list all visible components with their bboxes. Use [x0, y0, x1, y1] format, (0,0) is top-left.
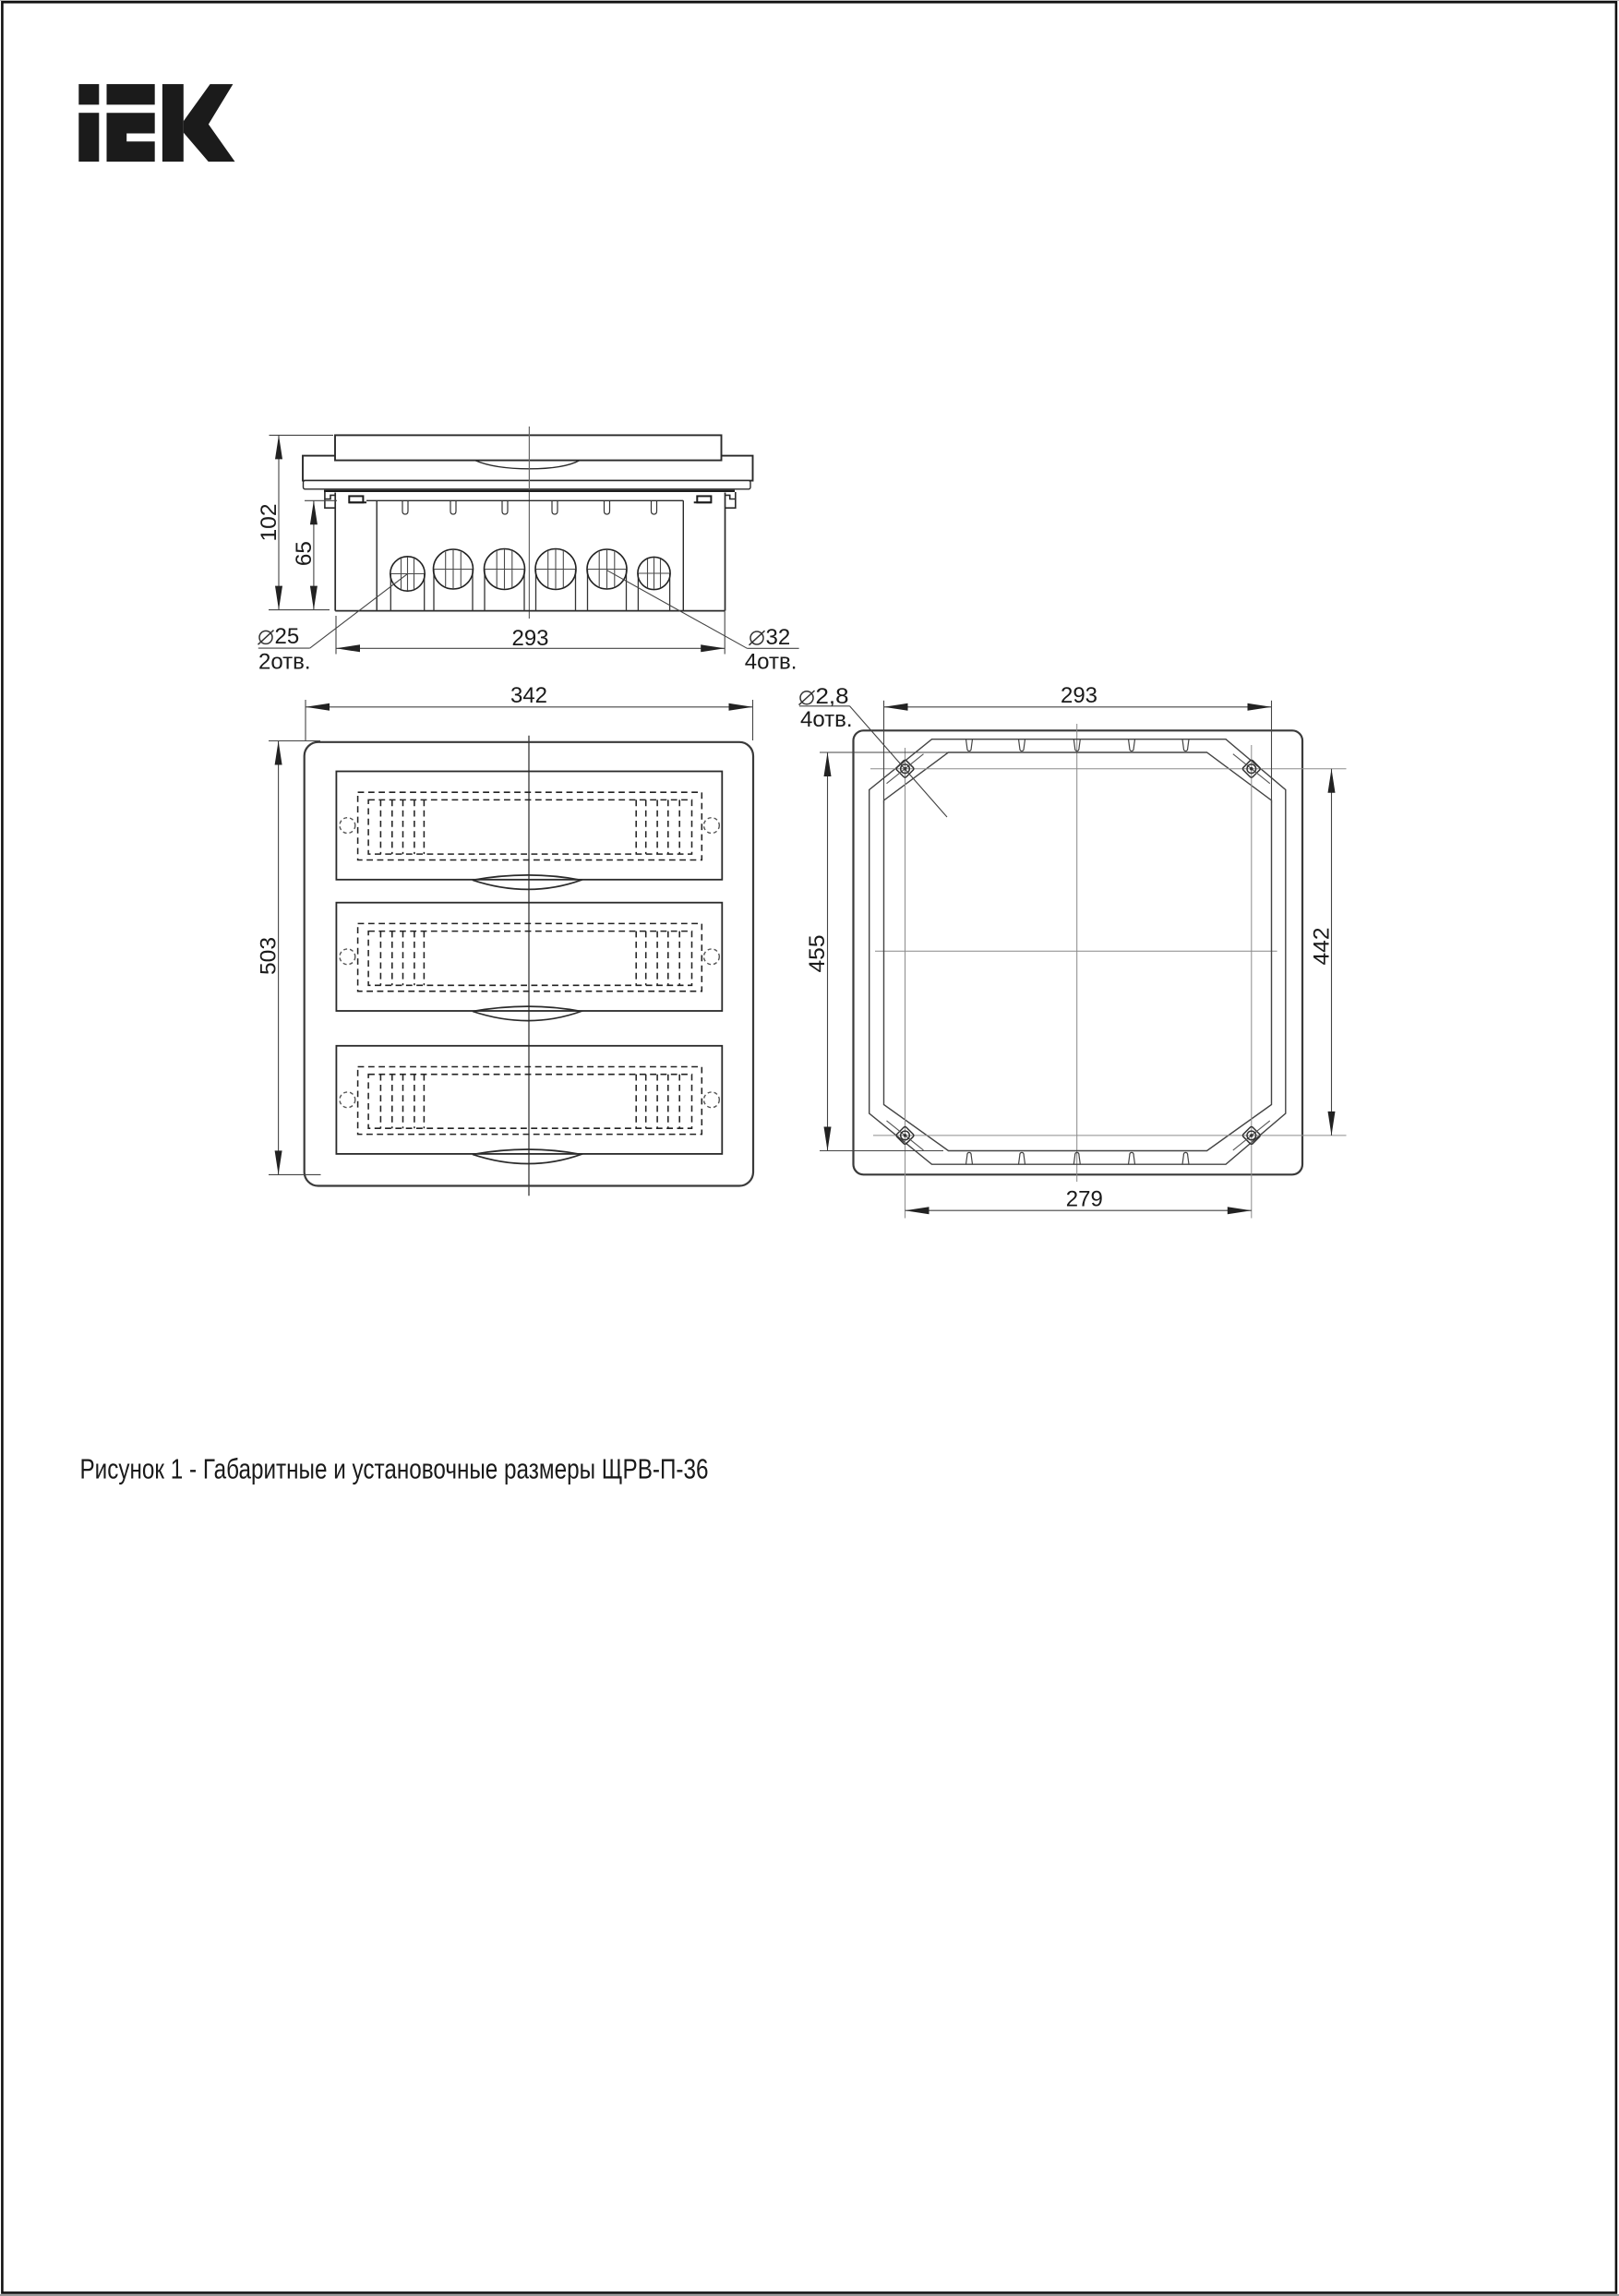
svg-text:342: 342 [510, 683, 547, 708]
svg-text:Рисунок 1 - Габаритные и устан: Рисунок 1 - Габаритные и установочные ра… [80, 1453, 709, 1485]
svg-text:455: 455 [805, 935, 830, 973]
svg-text:65: 65 [292, 541, 317, 566]
svg-text:102: 102 [257, 504, 282, 542]
svg-text:293: 293 [512, 626, 549, 651]
svg-text:2отв.: 2отв. [258, 649, 311, 674]
svg-text:32: 32 [766, 625, 791, 650]
svg-text:503: 503 [257, 937, 282, 975]
svg-text:279: 279 [1066, 1187, 1103, 1212]
svg-text:293: 293 [1061, 683, 1097, 708]
svg-text:25: 25 [275, 624, 300, 649]
svg-text:4отв.: 4отв. [800, 707, 853, 732]
svg-text:442: 442 [1310, 928, 1335, 966]
svg-text:4отв.: 4отв. [745, 649, 798, 674]
svg-text:2,8: 2,8 [816, 684, 849, 709]
